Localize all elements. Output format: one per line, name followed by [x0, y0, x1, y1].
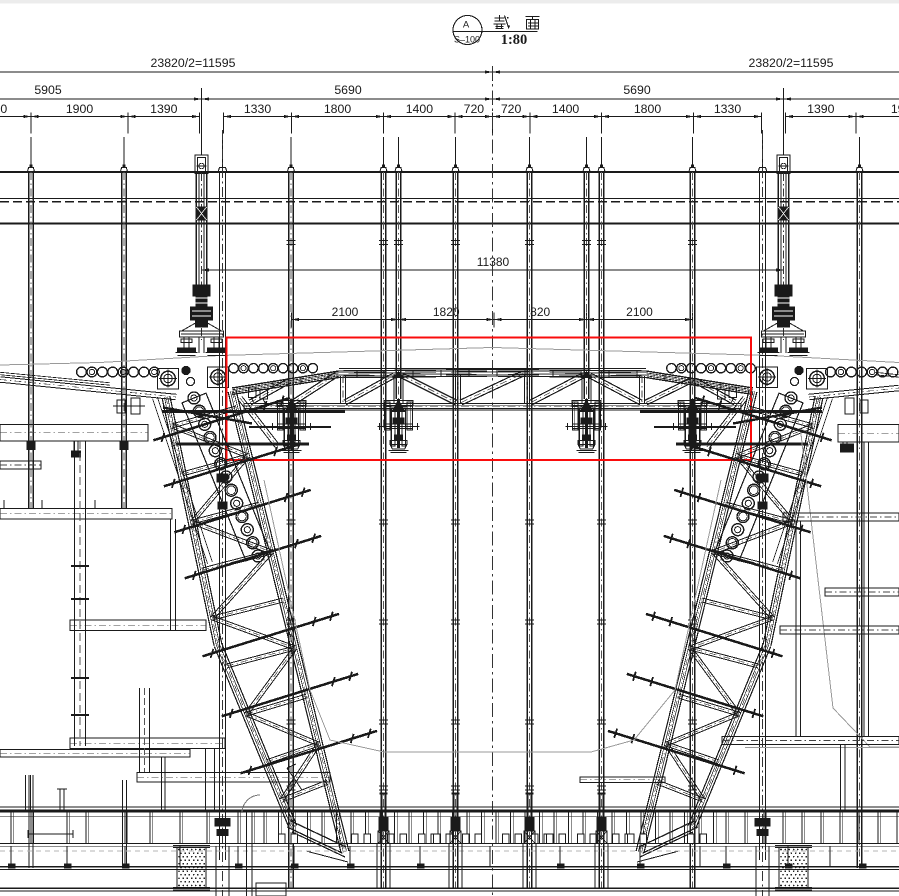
svg-text:1900: 1900: [891, 102, 899, 116]
svg-text:1400: 1400: [406, 102, 434, 116]
svg-text:1:80: 1:80: [501, 32, 528, 48]
svg-text:2100: 2100: [626, 305, 653, 319]
svg-text:1900: 1900: [66, 102, 94, 116]
svg-text:2100: 2100: [332, 305, 359, 319]
svg-text:S–100: S–100: [454, 35, 480, 45]
svg-text:23820/2=11595: 23820/2=11595: [749, 56, 834, 70]
svg-text:5690: 5690: [334, 83, 362, 97]
svg-text:1390: 1390: [807, 102, 835, 116]
svg-text:820: 820: [530, 305, 550, 319]
svg-text:1800: 1800: [634, 102, 662, 116]
svg-text:5690: 5690: [623, 83, 651, 97]
svg-text:5905: 5905: [34, 83, 62, 97]
svg-text:1330: 1330: [244, 102, 272, 116]
svg-text:1900: 1900: [0, 102, 7, 116]
svg-text:1330: 1330: [714, 102, 742, 116]
svg-text:1800: 1800: [324, 102, 352, 116]
svg-text:23820/2=11595: 23820/2=11595: [151, 56, 236, 70]
svg-text:720: 720: [501, 102, 522, 116]
svg-text:720: 720: [464, 102, 485, 116]
svg-text:A: A: [463, 20, 470, 31]
svg-text:1400: 1400: [552, 102, 580, 116]
svg-text:11380: 11380: [477, 255, 510, 269]
svg-text:1390: 1390: [150, 102, 178, 116]
